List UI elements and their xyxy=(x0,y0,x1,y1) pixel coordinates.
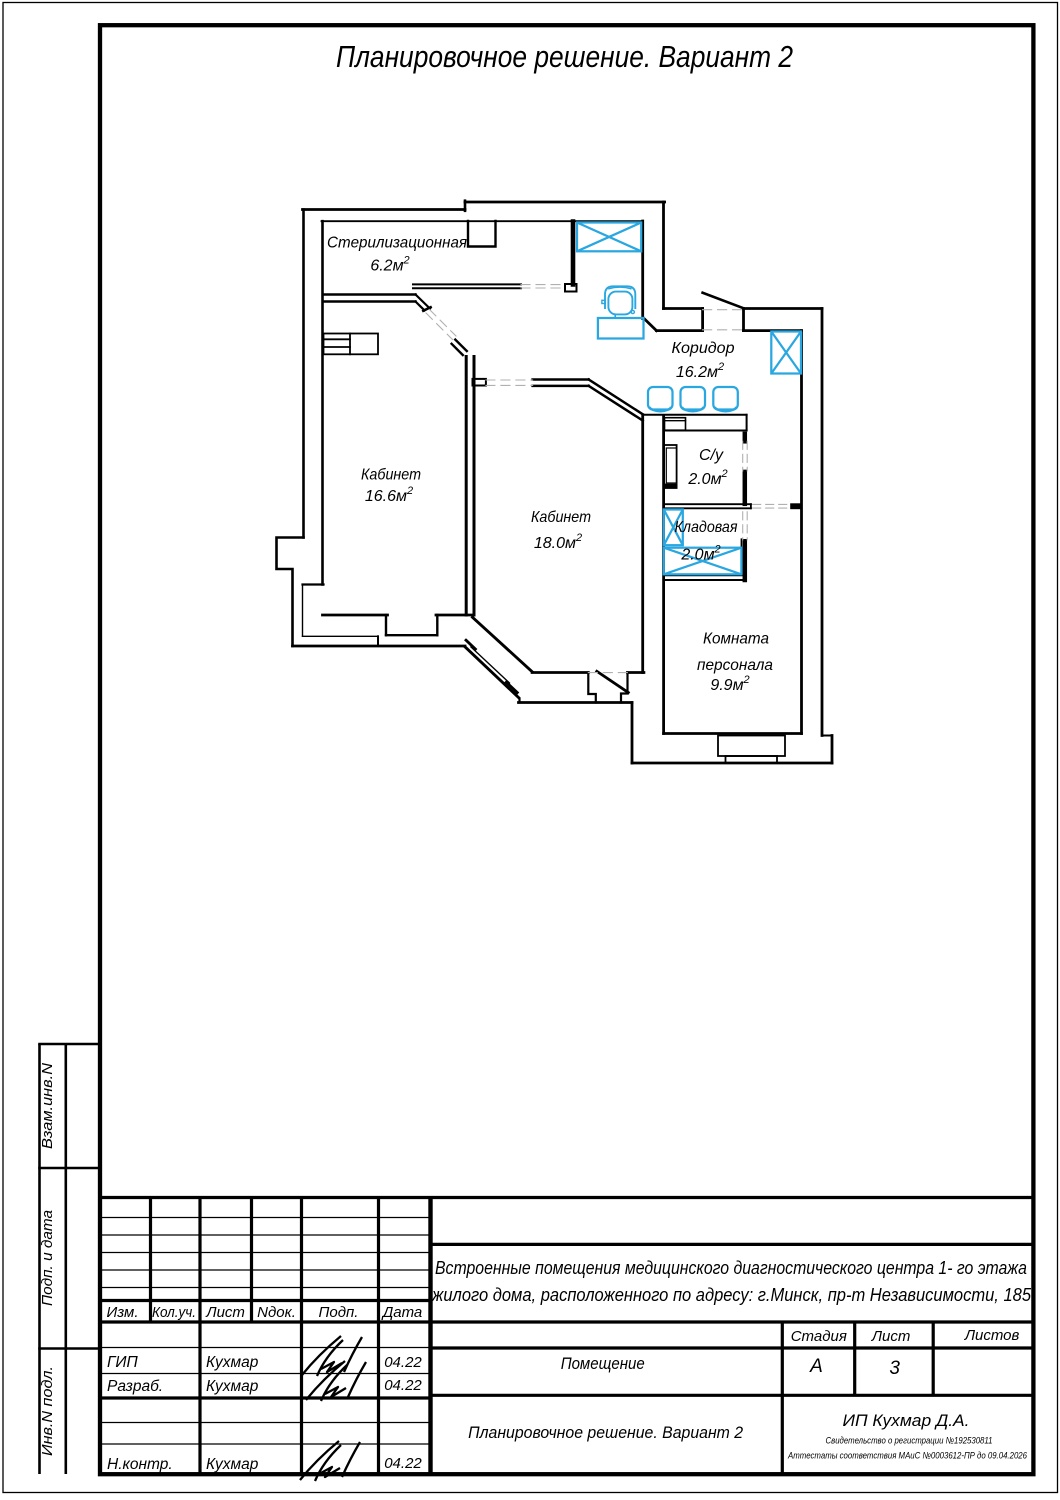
svg-text:Встроенные помещения медицинск: Встроенные помещения медицинского диагно… xyxy=(435,1258,1027,1278)
svg-text:9.9м2: 9.9м2 xyxy=(710,674,749,694)
svg-text:2.0м2: 2.0м2 xyxy=(687,468,727,488)
svg-text:6.2м2: 6.2м2 xyxy=(370,255,409,275)
svg-text:Лист: Лист xyxy=(871,1328,911,1345)
svg-text:ИП Кухмар Д.А.: ИП Кухмар Д.А. xyxy=(843,1411,970,1430)
svg-text:Стадия: Стадия xyxy=(791,1328,847,1345)
svg-text:Дата: Дата xyxy=(381,1304,423,1321)
svg-text:Планировочное решение. Вариант: Планировочное решение. Вариант 2 xyxy=(336,40,793,74)
svg-text:Аттестаты соответствия МАиС №0: Аттестаты соответствия МАиС №0003612-ПР … xyxy=(787,1451,1027,1462)
svg-text:Nдок.: Nдок. xyxy=(257,1304,296,1321)
svg-text:Кабинет: Кабинет xyxy=(361,467,421,484)
svg-text:Планировочное решение. Вариант: Планировочное решение. Вариант 2 xyxy=(468,1424,743,1442)
svg-text:Кухмар: Кухмар xyxy=(206,1354,259,1371)
svg-text:16.2м2: 16.2м2 xyxy=(676,361,724,381)
svg-text:С/у: С/у xyxy=(699,447,724,464)
svg-text:Комната: Комната xyxy=(703,631,769,648)
svg-text:ГИП: ГИП xyxy=(107,1354,139,1371)
svg-text:Н.контр.: Н.контр. xyxy=(107,1456,173,1473)
svg-text:Инв.N подл.: Инв.N подл. xyxy=(39,1366,56,1456)
svg-text:Лист: Лист xyxy=(205,1304,245,1321)
svg-text:А: А xyxy=(809,1356,823,1377)
svg-text:Кол.уч.: Кол.уч. xyxy=(152,1304,196,1321)
svg-text:Разраб.: Разраб. xyxy=(107,1378,163,1395)
svg-text:04.22: 04.22 xyxy=(384,1354,422,1371)
svg-text:2.0м2: 2.0м2 xyxy=(680,544,720,564)
svg-text:18.0м2: 18.0м2 xyxy=(534,532,582,552)
svg-text:Подп. и дата: Подп. и дата xyxy=(39,1210,56,1306)
svg-text:жилого дома, расположенного по: жилого дома, расположенного по адресу: г… xyxy=(431,1285,1032,1305)
svg-text:Кабинет: Кабинет xyxy=(531,509,591,526)
svg-text:04.22: 04.22 xyxy=(384,1455,422,1472)
svg-text:Кладовая: Кладовая xyxy=(675,519,738,536)
svg-text:Листов: Листов xyxy=(964,1327,1020,1344)
svg-text:16.6м2: 16.6м2 xyxy=(365,485,413,505)
svg-text:Взам.инв.N: Взам.инв.N xyxy=(39,1063,56,1149)
svg-text:Стерилизационная: Стерилизационная xyxy=(327,235,467,252)
svg-text:04.22: 04.22 xyxy=(384,1377,422,1394)
svg-text:Коридор: Коридор xyxy=(672,340,735,357)
svg-text:Кухмар: Кухмар xyxy=(206,1456,259,1473)
svg-text:Кухмар: Кухмар xyxy=(206,1378,259,1395)
svg-text:Свидетельство о регистрации №1: Свидетельство о регистрации №192530811 xyxy=(826,1436,993,1447)
svg-text:персонала: персонала xyxy=(697,657,773,674)
svg-text:Помещение: Помещение xyxy=(561,1354,645,1373)
svg-text:Подп.: Подп. xyxy=(319,1304,359,1321)
svg-text:3: 3 xyxy=(889,1358,900,1379)
svg-text:Изм.: Изм. xyxy=(107,1304,139,1321)
